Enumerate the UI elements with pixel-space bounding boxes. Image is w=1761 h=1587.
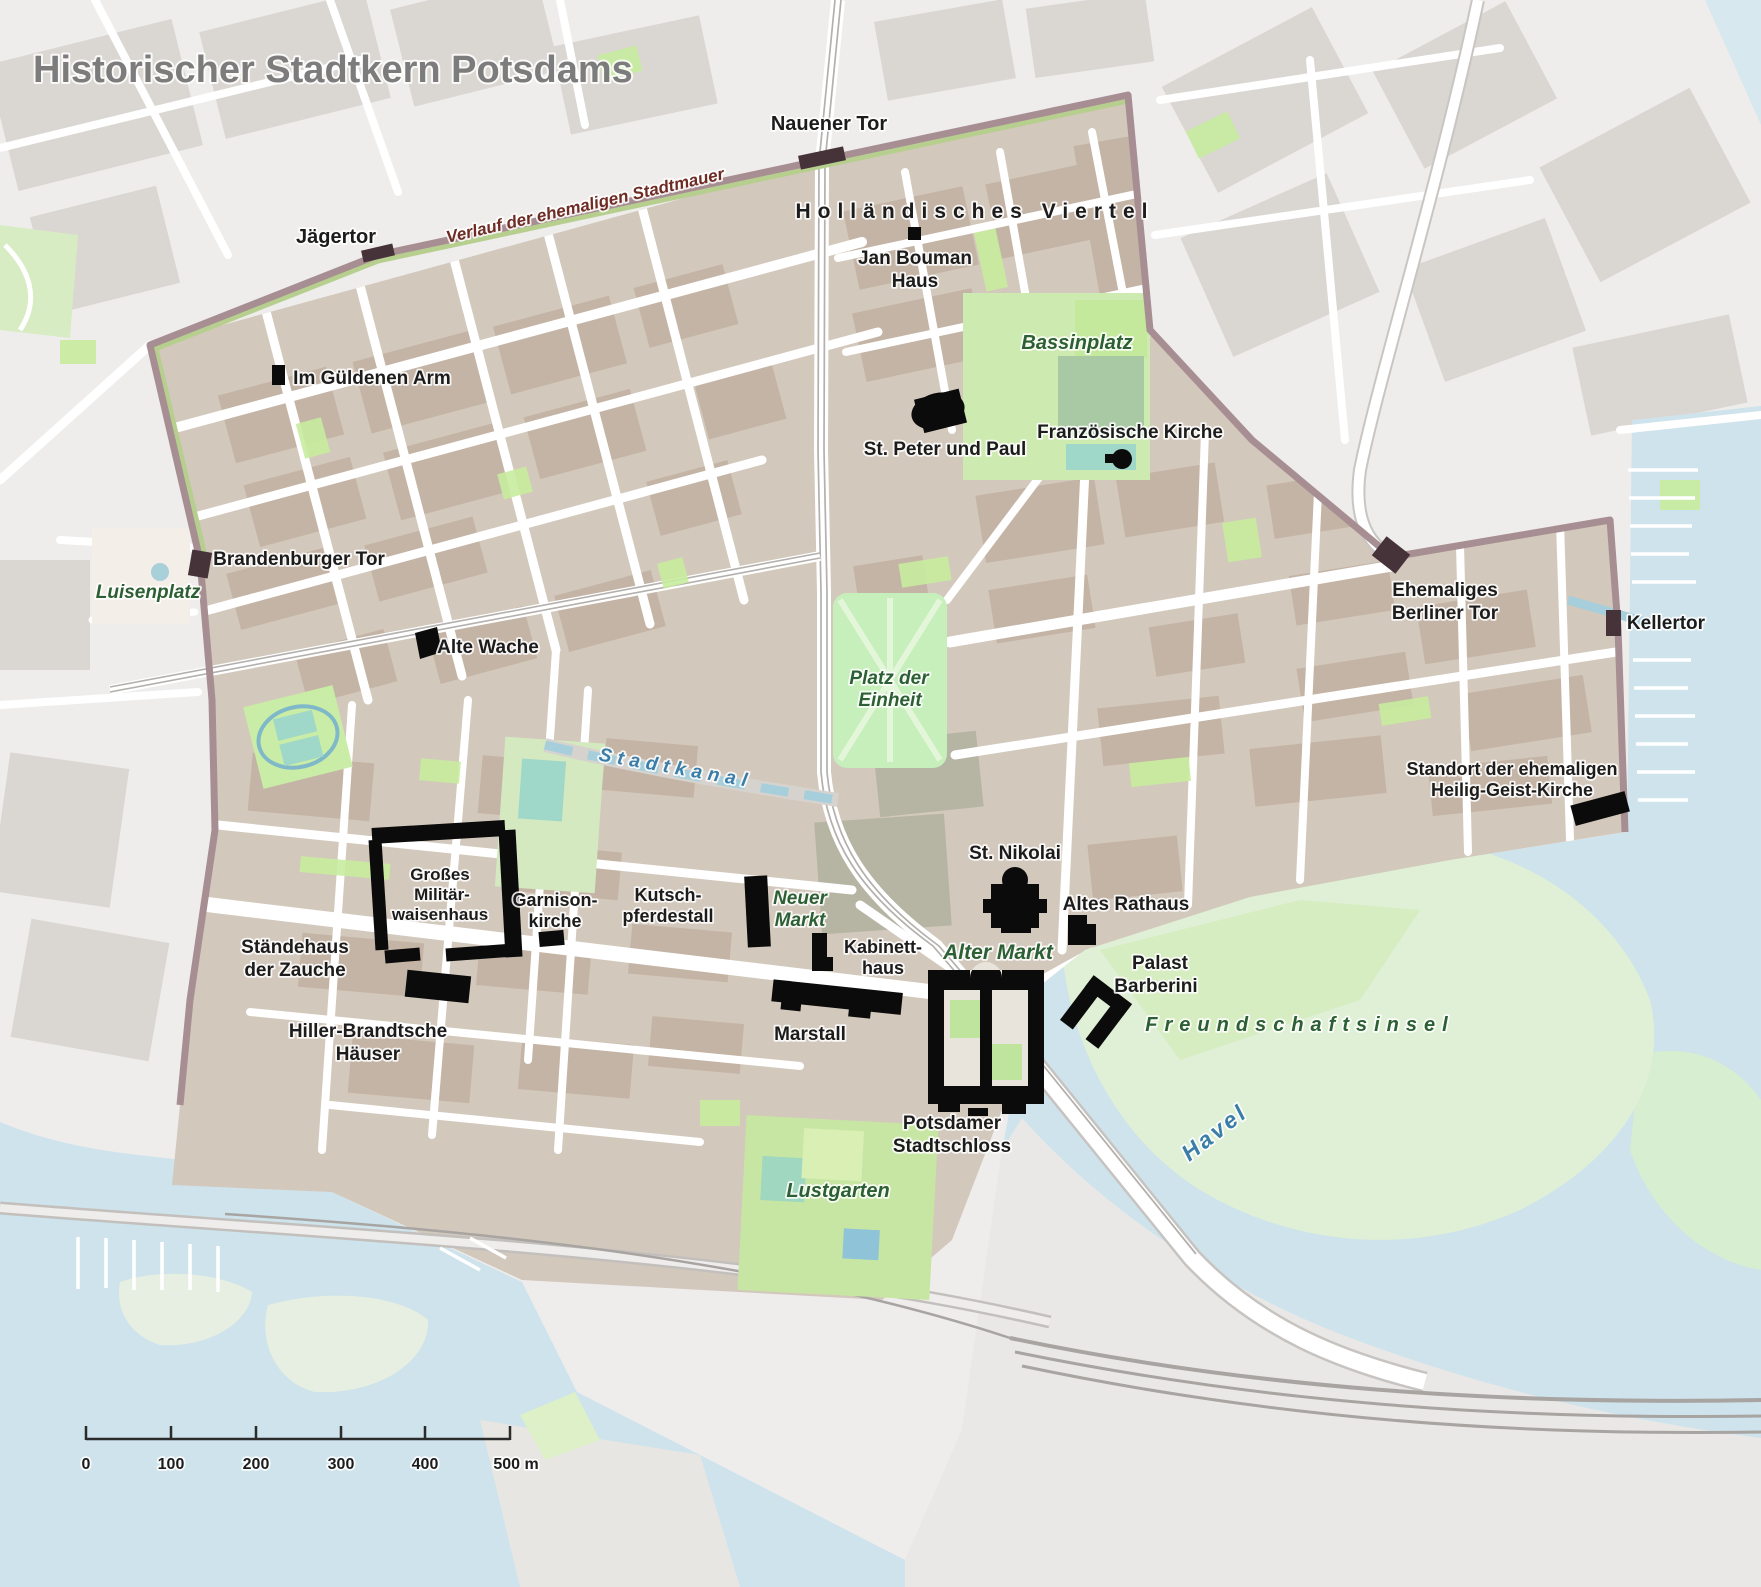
label-staendehaus-1: Ständehaus	[241, 937, 349, 958]
label-neuer-markt-2: Markt	[775, 910, 826, 931]
label-palast-barberini-2: Barberini	[1114, 976, 1197, 997]
im-gueldenen-arm-icon	[272, 365, 285, 385]
label-alter-markt: Alter Markt	[942, 941, 1054, 964]
park-northwest	[0, 225, 78, 338]
label-jaegertor: Jägertor	[296, 226, 376, 248]
potsdam-historic-map[interactable]: Historischer Stadtkern Potsdams Nauener …	[0, 0, 1761, 1587]
gate-kellertor-icon	[1606, 610, 1621, 636]
label-waisenhaus-3: waisenhaus	[391, 905, 488, 924]
label-garnisonkirche-2: kirche	[528, 911, 581, 931]
map-title: Historischer Stadtkern Potsdams	[33, 49, 633, 91]
square-luisenplatz	[92, 528, 190, 624]
label-platz-der-einheit-1: Platz der	[849, 668, 930, 689]
scale-tick-300: 300	[328, 1456, 355, 1473]
label-neuer-markt-1: Neuer	[773, 888, 828, 909]
label-platz-der-einheit-2: Einheit	[858, 690, 922, 711]
label-heilig-geist-2: Heilig-Geist-Kirche	[1431, 780, 1593, 800]
label-st-peter-und-paul: St. Peter und Paul	[864, 439, 1027, 460]
label-kutschpferdestall-1: Kutsch-	[635, 885, 702, 905]
label-kabinetthaus-2: haus	[862, 958, 904, 978]
label-bassinplatz: Bassinplatz	[1021, 332, 1132, 354]
label-brandenburger-tor: Brandenburger Tor	[213, 549, 385, 570]
label-berliner-tor-1: Ehemaliges	[1392, 580, 1498, 601]
label-kutschpferdestall-2: pferdestall	[622, 906, 713, 926]
label-jan-bouman-1: Jan Bouman	[858, 248, 972, 269]
label-garnisonkirche-1: Garnison-	[512, 890, 597, 910]
scale-tick-200: 200	[243, 1456, 270, 1473]
label-hiller-2: Häuser	[336, 1044, 401, 1065]
label-palast-barberini-1: Palast	[1132, 953, 1189, 974]
garnisonkirche-icon	[538, 930, 564, 947]
kutschpferdestall-icon	[744, 875, 771, 947]
label-kabinetthaus-1: Kabinett-	[844, 937, 922, 957]
label-staendehaus-2: der Zauche	[244, 960, 345, 981]
label-marstall: Marstall	[774, 1024, 846, 1045]
scale-tick-500: 500 m	[493, 1456, 538, 1473]
jan-bouman-haus-icon	[908, 227, 921, 240]
label-heilig-geist-1: Standort der ehemaligen	[1406, 759, 1617, 779]
map-canvas: Historischer Stadtkern Potsdams Nauener …	[0, 0, 1761, 1587]
label-nauener-tor: Nauener Tor	[771, 113, 888, 135]
label-waisenhaus-1: Großes	[410, 865, 470, 884]
label-im-gueldenen-arm: Im Güldenen Arm	[293, 368, 451, 389]
label-lustgarten: Lustgarten	[786, 1180, 889, 1202]
scale-tick-0: 0	[82, 1456, 91, 1473]
label-waisenhaus-2: Militär-	[414, 885, 470, 904]
scale-tick-400: 400	[412, 1456, 439, 1473]
label-franzoesische-kirche: Französische Kirche	[1037, 422, 1223, 443]
stadtschloss-icon	[928, 962, 1044, 1116]
label-jan-bouman-2: Haus	[892, 271, 938, 292]
label-altes-rathaus: Altes Rathaus	[1063, 894, 1190, 915]
label-berliner-tor-2: Berliner Tor	[1392, 603, 1499, 624]
label-kellertor: Kellertor	[1627, 613, 1706, 634]
scale-tick-100: 100	[158, 1456, 185, 1473]
label-stadtschloss-2: Stadtschloss	[893, 1136, 1011, 1157]
label-hollaendisches-viertel: Holländisches Viertel	[795, 200, 1154, 223]
label-alte-wache: Alte Wache	[437, 637, 539, 658]
label-luisenplatz: Luisenplatz	[96, 582, 201, 603]
label-hiller-1: Hiller-Brandtsche	[289, 1021, 447, 1042]
label-st-nikolai: St. Nikolai	[969, 843, 1061, 864]
label-freundschaftsinsel: Freundschaftsinsel	[1145, 1014, 1454, 1036]
label-stadtschloss-1: Potsdamer	[903, 1113, 1002, 1134]
